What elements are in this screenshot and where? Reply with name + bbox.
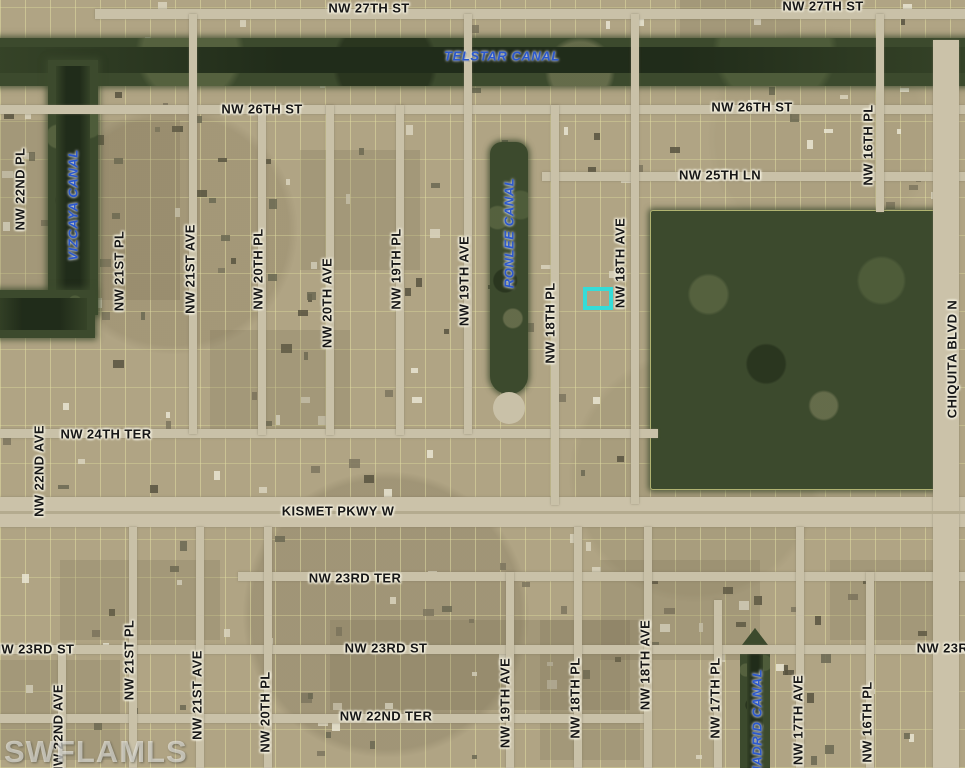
street-label: NW 20TH AVE — [321, 258, 334, 348]
subject-property-highlight — [583, 287, 613, 310]
street-label: NW 20TH PL — [252, 228, 265, 309]
street-label: NW 21ST PL — [113, 231, 126, 312]
street-label: NW 18TH PL — [544, 282, 557, 363]
street-label: NW 17TH PL — [709, 657, 722, 738]
street-label: NW 20TH PL — [259, 671, 272, 752]
street-label: KISMET PKWY W — [282, 505, 395, 518]
street-label: NW 22ND PL — [14, 148, 27, 231]
canal-label: RONLEE CANAL — [503, 178, 516, 288]
street-label: NW 25TH LN — [679, 169, 761, 182]
street-label: NW 27TH ST — [782, 0, 863, 13]
street-label: NW 18TH AVE — [639, 620, 652, 710]
street-label: NW 23RD ST — [345, 642, 428, 655]
street-label: NW 16TH PL — [861, 681, 874, 762]
mls-watermark: SWFLAMLS — [4, 734, 188, 768]
street-label: NW 22ND TER — [340, 710, 433, 723]
street-label: NW 26TH ST — [711, 101, 792, 114]
street-label: NW 18TH AVE — [614, 218, 627, 308]
canal-label: VIZCAYA CANAL — [67, 149, 80, 261]
street-label: NW 18TH PL — [569, 657, 582, 738]
street-label: NW 24TH TER — [60, 428, 151, 441]
street-label: NW 19TH PL — [390, 228, 403, 309]
street-label: NW 22ND AVE — [33, 425, 46, 517]
street-label: NW 19TH AVE — [499, 658, 512, 748]
street-label: NW 23RD ST — [0, 643, 74, 656]
street-label: NW 17TH AVE — [792, 675, 805, 765]
street-label: NW 21ST AVE — [184, 224, 197, 314]
street-label: CHIQUITA BLVD N — [946, 300, 959, 418]
labels-layer: NW 27TH STNW 27TH STTELSTAR CANALNW 26TH… — [0, 0, 965, 768]
canal-label: TELSTAR CANAL — [444, 50, 560, 63]
street-label: NW 19TH AVE — [458, 236, 471, 326]
street-label: NW 21ST AVE — [191, 650, 204, 740]
satellite-map: NW 27TH STNW 27TH STTELSTAR CANALNW 26TH… — [0, 0, 965, 768]
street-label: NW 23RD ST — [917, 642, 965, 655]
street-label: NW 23RD TER — [309, 572, 402, 585]
canal-label: MADRID CANAL — [751, 669, 764, 768]
street-label: NW 16TH PL — [862, 104, 875, 185]
street-label: NW 26TH ST — [221, 103, 302, 116]
street-label: NW 21ST PL — [123, 620, 136, 701]
street-label: NW 27TH ST — [328, 2, 409, 15]
